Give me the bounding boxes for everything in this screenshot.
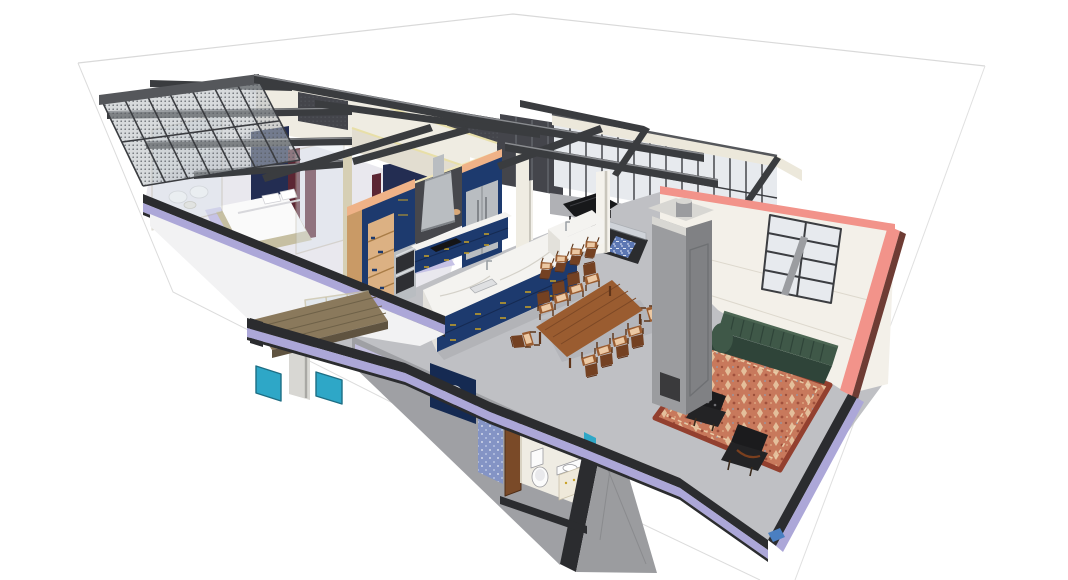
chimney-flue [676, 198, 692, 217]
double-wall-oven [394, 243, 416, 305]
teal-glass-panel [316, 372, 342, 404]
fireplace-chimney [648, 198, 714, 415]
pavilion-fascia-return [777, 156, 802, 181]
kitchen-end-wall [516, 148, 529, 257]
model-viewport[interactable] [0, 0, 1068, 580]
teal-glass-panel [256, 366, 281, 401]
wall-window [762, 215, 841, 303]
building-cutaway [99, 74, 906, 573]
